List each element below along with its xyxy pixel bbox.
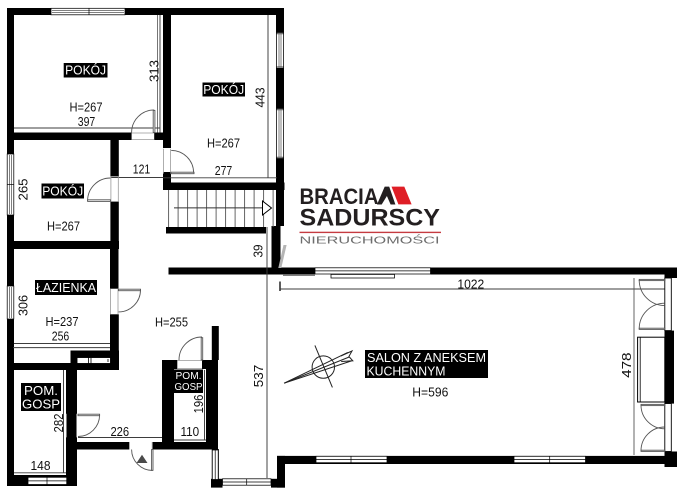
svg-text:ŁAZIENKA: ŁAZIENKA (36, 280, 96, 295)
svg-text:KUCHENNYM: KUCHENNYM (367, 364, 446, 379)
svg-text:SADURSCY: SADURSCY (300, 205, 441, 232)
svg-text:282: 282 (51, 414, 66, 433)
svg-text:39: 39 (251, 245, 266, 258)
svg-text:POKÓJ: POKÓJ (203, 82, 244, 97)
svg-text:537: 537 (251, 365, 266, 388)
svg-text:256: 256 (52, 329, 70, 344)
svg-text:POM.: POM. (176, 370, 202, 382)
svg-text:478: 478 (619, 352, 634, 378)
svg-text:NIERUCHOMOŚCI: NIERUCHOMOŚCI (300, 234, 440, 247)
svg-text:397: 397 (78, 114, 96, 129)
svg-text:GOSP: GOSP (22, 397, 60, 412)
svg-text:265: 265 (16, 179, 31, 201)
svg-text:196: 196 (191, 395, 206, 414)
svg-text:313: 313 (147, 60, 162, 82)
svg-text:306: 306 (16, 295, 31, 316)
svg-text:H=255: H=255 (155, 315, 188, 330)
svg-text:277: 277 (215, 163, 233, 178)
svg-text:POKÓJ: POKÓJ (42, 184, 83, 199)
svg-text:226: 226 (110, 424, 129, 439)
svg-text:148: 148 (31, 458, 51, 473)
svg-text:GOSP: GOSP (175, 381, 203, 393)
svg-text:H=267: H=267 (70, 100, 103, 115)
svg-text:H=267: H=267 (47, 219, 80, 234)
svg-text:POKÓJ: POKÓJ (65, 63, 106, 78)
svg-text:1022: 1022 (457, 277, 484, 292)
svg-text:121: 121 (133, 162, 151, 177)
svg-text:H=267: H=267 (207, 136, 240, 151)
svg-text:H=596: H=596 (412, 385, 448, 400)
svg-text:110: 110 (180, 424, 199, 439)
svg-text:443: 443 (253, 88, 268, 108)
svg-text:H=237: H=237 (46, 314, 79, 329)
